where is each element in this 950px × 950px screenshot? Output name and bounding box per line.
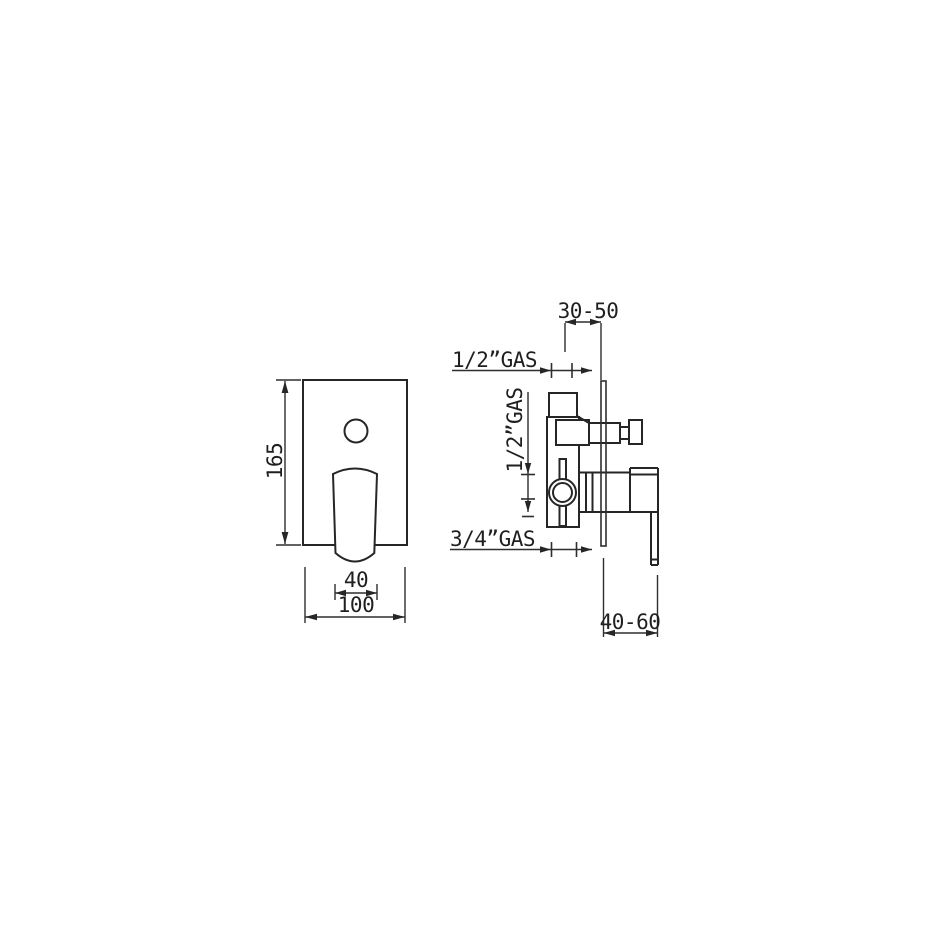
leader-arrow (581, 546, 592, 552)
dim-arrow-down (282, 532, 289, 544)
leader-top-connection: 1/2”GAS (452, 348, 592, 378)
side-diverter-arm-lower (560, 505, 567, 526)
technical-drawing-canvas: 165 40 100 (0, 0, 950, 950)
side-outlet-pipe-neck (620, 427, 629, 439)
dim-plate-height: 165 (263, 380, 301, 545)
side-diverter-arm-upper (560, 459, 567, 480)
leader-arrow (525, 501, 531, 512)
side-handle (630, 468, 658, 565)
leader-arrow (540, 546, 551, 552)
dim-label-plate-width: 100 (338, 593, 374, 617)
side-outlet-pipe-seg1 (556, 420, 589, 445)
dim-arrow-left (305, 614, 317, 620)
front-handle (333, 469, 377, 562)
dim-depth-bottom: 40-60 (600, 558, 661, 637)
label-top-connection: 1/2”GAS (452, 348, 537, 372)
side-view: 30-50 1/2”GAS 1/2”GAS (450, 299, 660, 637)
dim-label-depth-top: 30-50 (558, 299, 619, 323)
dim-arrow-right (393, 614, 405, 620)
front-view: 165 40 100 (263, 380, 407, 623)
side-top-outlet (549, 393, 577, 417)
side-outlet-pipe-seg2 (589, 423, 620, 443)
leader-arrow (540, 367, 551, 373)
dim-label-depth-bottom: 40-60 (600, 610, 661, 634)
leader-arrow (581, 367, 592, 373)
dim-depth-top: 30-50 (558, 299, 619, 380)
side-cartridge (579, 473, 658, 513)
leader-bottom-connection: 3/4”GAS (450, 527, 592, 557)
mixer-valve-drawing: 165 40 100 (0, 0, 950, 950)
label-side-connection: 1/2”GAS (503, 387, 527, 472)
label-bottom-connection: 3/4”GAS (450, 527, 535, 551)
leader-side-connection: 1/2”GAS (503, 387, 535, 516)
side-outlet-pipe-cap (629, 420, 642, 444)
dim-arrow-up (282, 381, 289, 393)
side-wall-plate-line (601, 381, 606, 546)
dim-label-handle-width: 40 (344, 568, 368, 592)
dim-label-plate-height: 165 (263, 443, 287, 479)
